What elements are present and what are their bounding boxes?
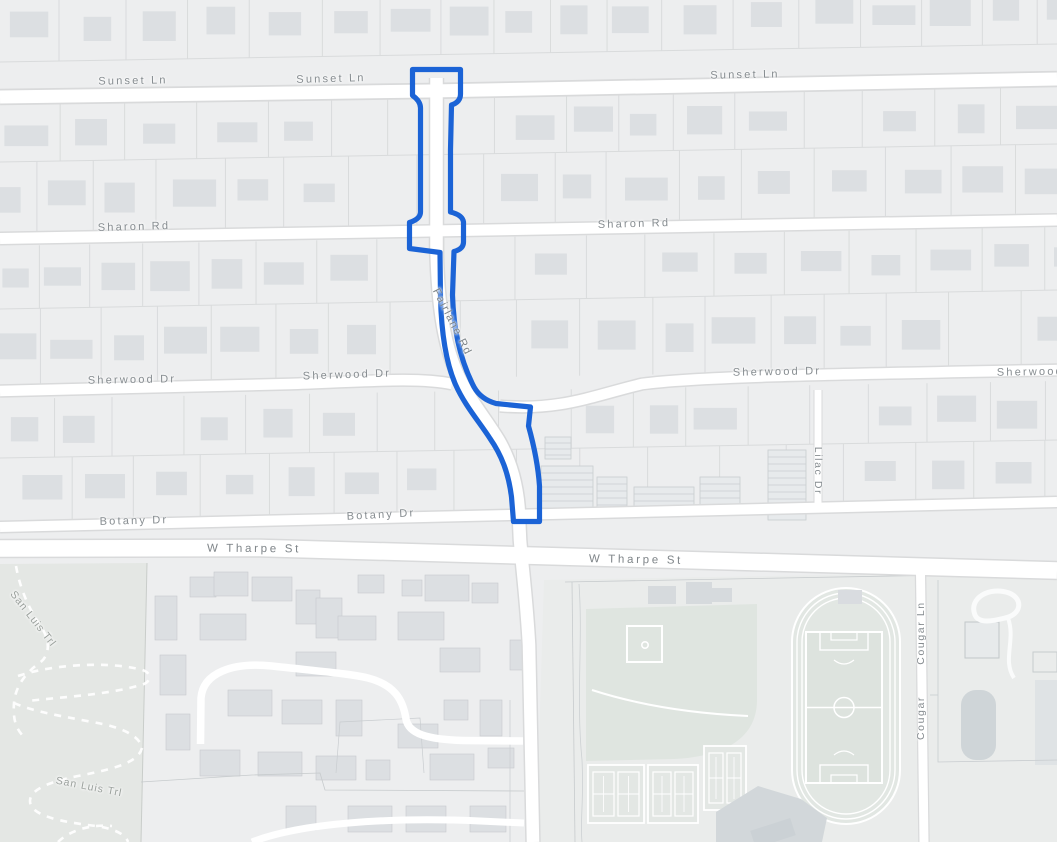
map-canvas bbox=[0, 0, 1057, 842]
park-area bbox=[0, 563, 147, 842]
baseball-field bbox=[586, 604, 757, 761]
map-viewport[interactable]: Sunset Ln Sunset Ln Sunset Ln Sharon Rd … bbox=[0, 0, 1057, 842]
running-track bbox=[792, 588, 900, 824]
